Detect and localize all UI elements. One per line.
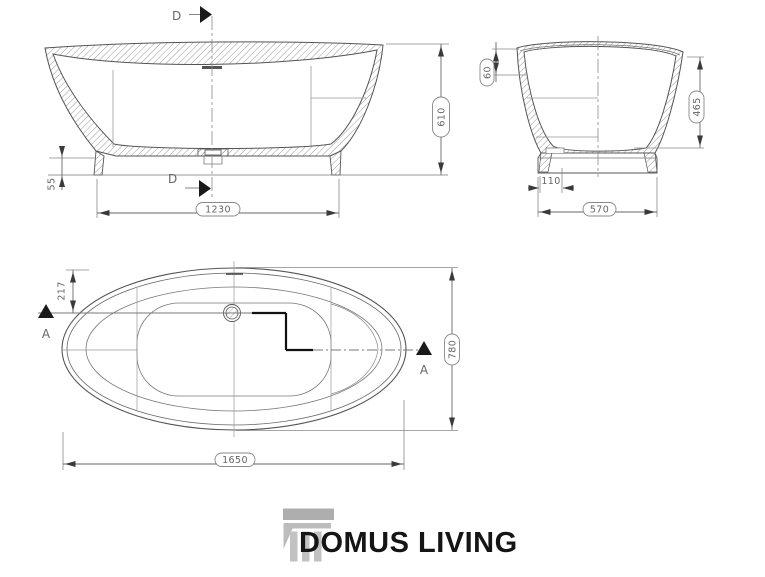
side-view: D D 610 55 bbox=[45, 6, 450, 218]
section-view: 60 465 110 570 bbox=[480, 36, 704, 217]
tub-shell-section bbox=[45, 42, 383, 156]
section-arrow-icon bbox=[38, 304, 54, 318]
dim-value: 465 bbox=[692, 97, 703, 116]
dim-value: 1230 bbox=[205, 205, 231, 216]
floor-step bbox=[546, 148, 564, 153]
brand-text: DOMUS LIVING bbox=[299, 527, 518, 559]
section-label: D bbox=[172, 9, 181, 23]
dim-value: 780 bbox=[448, 340, 459, 359]
dim-overall-length: 1650 bbox=[63, 400, 404, 470]
dim-value: 610 bbox=[437, 107, 448, 126]
plinth-corner-left bbox=[539, 153, 552, 172]
dim-value: 60 bbox=[483, 66, 494, 79]
dim-plinth-height: 55 bbox=[47, 146, 97, 190]
section-arrow-icon bbox=[416, 341, 432, 355]
drawing-sheet: D D 610 55 bbox=[0, 0, 765, 577]
plan-view: A A 217 780 1650 bbox=[38, 261, 460, 470]
section-label: A bbox=[420, 363, 429, 377]
dim-value: 1650 bbox=[222, 455, 248, 466]
logo: DOMUS LIVING bbox=[283, 509, 518, 562]
section-label: D bbox=[168, 172, 177, 186]
dim-base-length: 1230 bbox=[97, 179, 339, 218]
dim-value: 217 bbox=[57, 281, 68, 300]
dim-value: 110 bbox=[541, 176, 560, 187]
dim-value: 55 bbox=[47, 178, 58, 191]
section-marker-d-top: D bbox=[172, 6, 212, 23]
tub-shell-section bbox=[517, 42, 683, 153]
floor-ramp-line bbox=[331, 304, 378, 394]
left-foot bbox=[94, 151, 104, 175]
dim-drain-offset: 217 bbox=[57, 270, 90, 313]
plinth-outline bbox=[538, 153, 657, 173]
section-arrow-icon bbox=[199, 180, 211, 197]
section-arrow-icon bbox=[200, 6, 212, 23]
bathtub-technical-drawing: D D 610 55 bbox=[0, 0, 765, 577]
dim-value: 570 bbox=[590, 205, 609, 216]
dim-base-step: 110 bbox=[528, 168, 574, 193]
section-label: A bbox=[42, 327, 51, 341]
section-marker-d-bottom: D bbox=[168, 172, 211, 197]
dim-overall-height: 610 bbox=[386, 44, 450, 175]
plinth-corner-right bbox=[644, 153, 657, 172]
